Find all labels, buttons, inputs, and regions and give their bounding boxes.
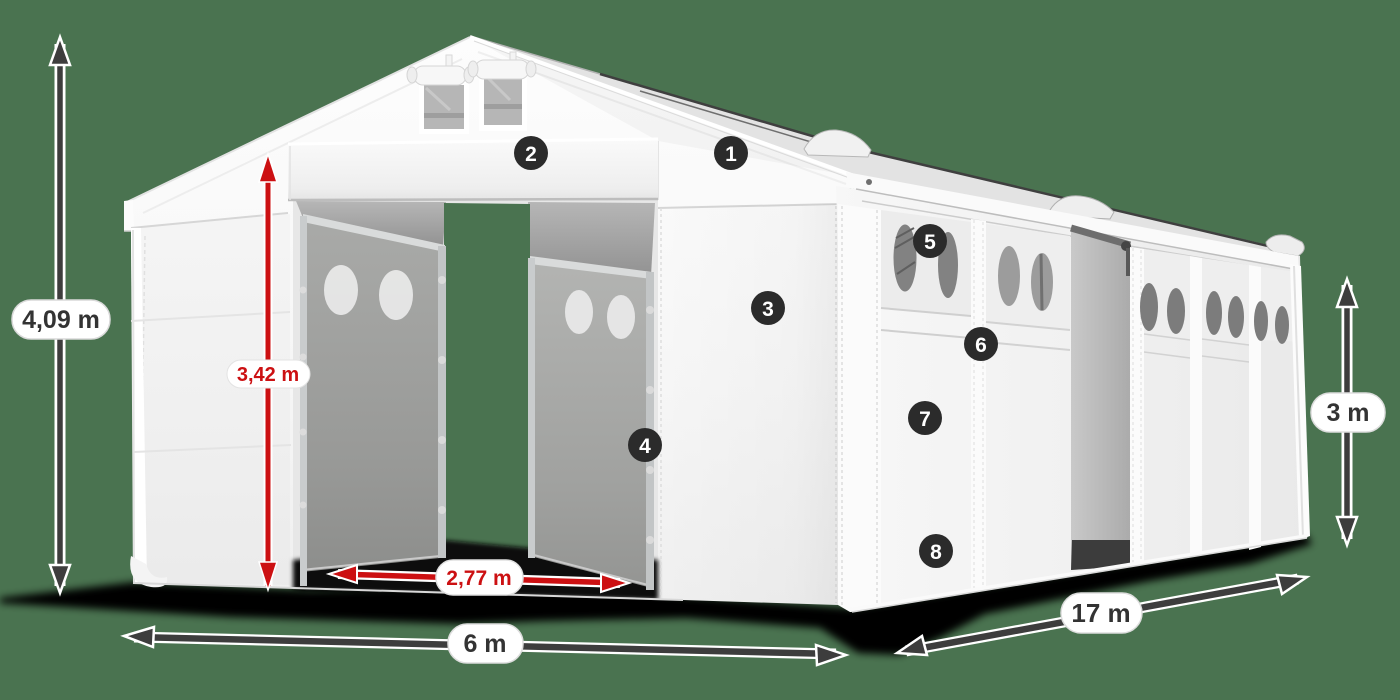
svg-text:4: 4	[639, 435, 651, 458]
svg-text:2,77 m: 2,77 m	[446, 567, 511, 590]
svg-text:4,09 m: 4,09 m	[22, 306, 100, 334]
svg-text:17 m: 17 m	[1071, 598, 1130, 628]
svg-text:2: 2	[525, 143, 537, 166]
svg-text:6: 6	[975, 334, 987, 357]
svg-text:8: 8	[930, 541, 942, 564]
svg-text:3 m: 3 m	[1326, 399, 1369, 427]
svg-text:6 m: 6 m	[463, 630, 506, 658]
svg-text:5: 5	[924, 231, 936, 254]
svg-text:7: 7	[919, 408, 931, 431]
svg-text:1: 1	[725, 143, 737, 166]
svg-text:3: 3	[762, 298, 774, 321]
svg-text:3,42 m: 3,42 m	[237, 364, 299, 386]
